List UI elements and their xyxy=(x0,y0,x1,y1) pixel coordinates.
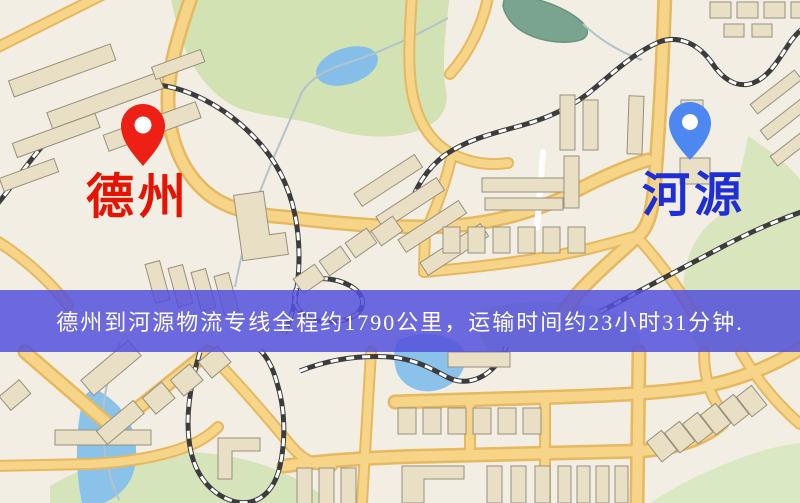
route-info-text: 德州到河源物流专线全程约1790公里，运输时间约23小时31分钟. xyxy=(56,305,744,337)
destination-pin-hole xyxy=(682,114,698,130)
destination-city-label: 河源 xyxy=(642,172,746,220)
origin-pin-shape xyxy=(121,104,165,166)
map-screenshot: 德州 河源 德州到河源物流专线全程约1790公里，运输时间约23小时31分钟. xyxy=(0,0,800,503)
origin-city-label: 德州 xyxy=(86,174,190,222)
destination-pin-shape xyxy=(669,102,711,160)
origin-map-pin-icon xyxy=(120,102,166,173)
map-canvas xyxy=(0,0,800,503)
destination-map-pin-icon xyxy=(668,100,712,167)
route-info-banner: 德州到河源物流专线全程约1790公里，运输时间约23小时31分钟. xyxy=(0,290,800,352)
origin-pin-hole xyxy=(135,117,152,134)
